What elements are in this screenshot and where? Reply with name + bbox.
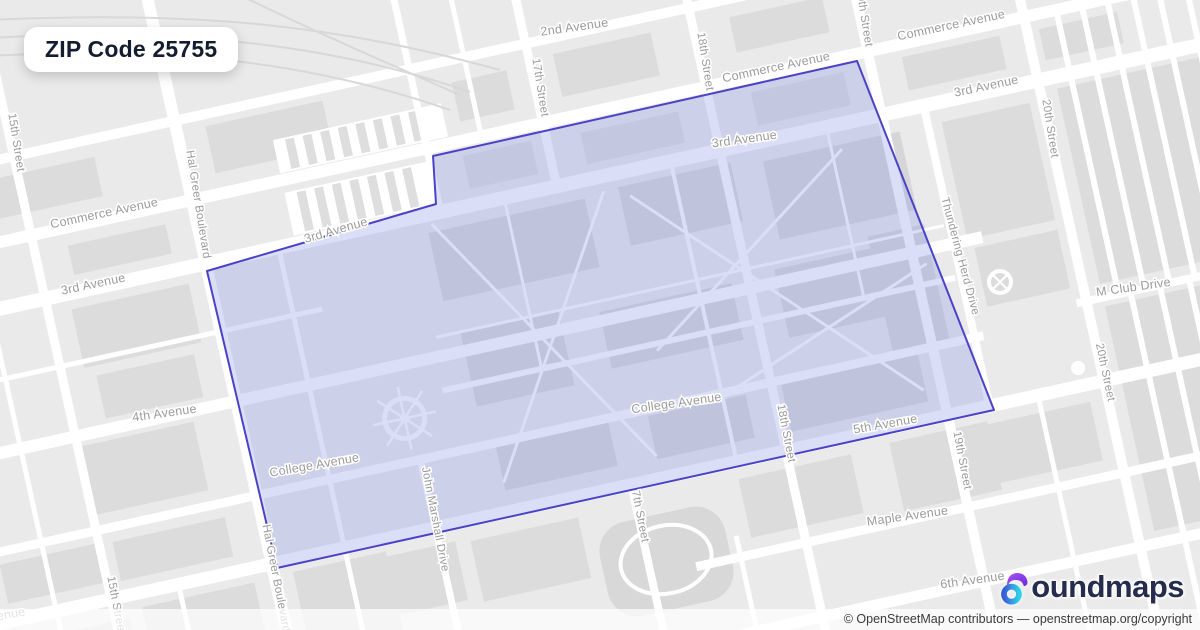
boundmaps-b-icon xyxy=(1000,570,1030,606)
map-share-card: 2nd Avenue 17th Street 18th Street Comme… xyxy=(0,0,1200,630)
map-canvas[interactable]: 2nd Avenue 17th Street 18th Street Comme… xyxy=(0,0,1200,630)
zip-code-badge: ZIP Code 25755 xyxy=(24,27,238,72)
attribution-bar: © OpenStreetMap contributors — openstree… xyxy=(0,609,1200,630)
brand-logo: oundmaps xyxy=(1000,570,1184,606)
zip-code-badge-title: ZIP Code 25755 xyxy=(45,36,217,62)
brand-wordmark: oundmaps xyxy=(1031,570,1184,604)
attribution-text: © OpenStreetMap contributors — openstree… xyxy=(844,612,1192,626)
